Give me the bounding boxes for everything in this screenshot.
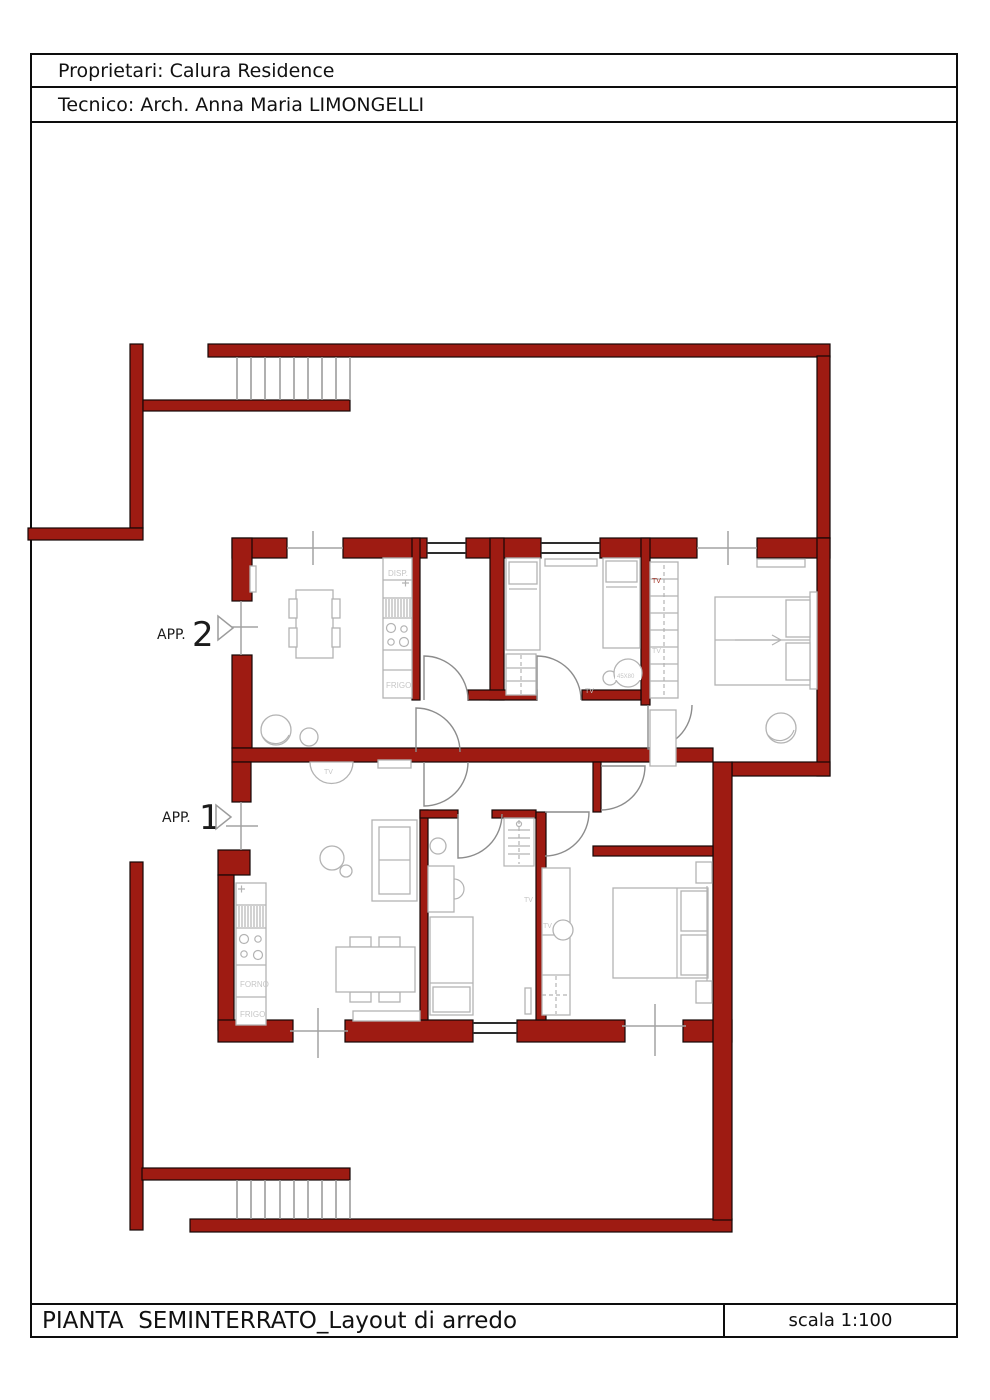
door-arc [424,656,468,700]
single-bed [603,558,640,648]
dining-table [336,937,415,1002]
table-size-label: 45X80 [617,674,635,680]
shelf [378,760,411,768]
dining-table [289,590,340,658]
wall-tv-unit [250,566,256,592]
wardrobe [525,868,573,1015]
stool [766,713,796,743]
single-bed [506,558,540,650]
stair-bottom [237,1180,350,1219]
closet-shelves [504,818,534,866]
nightstand [696,981,712,1003]
nightstand [696,862,712,883]
tv-label: TV [543,923,552,930]
tv-stand [353,1011,420,1021]
double-bed [613,886,708,981]
forno-label: FORNO [240,980,269,989]
sofa [372,820,417,901]
entry-arrow-icon [218,616,233,640]
shelf [545,559,597,566]
disp-label: DISP. [388,569,408,578]
door-arc [537,656,581,700]
tv-label: TV [652,648,661,655]
tv-label: TV [324,769,333,776]
app2-label: APP. [157,627,186,643]
door-arc [545,812,589,856]
app1-walls [218,762,732,1220]
tv-label: TV [524,897,533,904]
dresser [506,654,536,695]
door-arc [458,814,502,858]
shelf [757,559,805,567]
app1-furniture [236,760,712,1025]
scale-label: scala 1:100 [723,1305,956,1336]
tv-label: TV [585,688,594,695]
floor-plan-drawing: DISP. FRIGO FORNO FRIGO TV TV TV TV TV T… [0,0,990,1400]
app1-marker: APP. 1 [162,798,231,838]
titleblock-footer: PIANTA SEMINTERRATO_Layout di arredo sca… [30,1303,958,1338]
frigo-label: FRIGO [386,681,411,690]
round-table-45x80 [603,659,642,687]
frigo-label: FRIGO [240,1010,265,1019]
stair-top [237,357,350,400]
kitchen-unit [236,883,266,1025]
site-walls [28,344,830,1232]
app2-furniture [250,558,817,766]
app2-marker: APP. 2 [157,615,233,655]
tv-label: TV [652,578,661,585]
plan-title: PIANTA SEMINTERRATO_Layout di arredo [32,1305,723,1336]
drawing-sheet: Proprietari: Calura Residence Tecnico: A… [0,0,990,1400]
app1-label: APP. [162,810,191,826]
armchair [261,715,318,746]
door-arc [601,766,645,810]
app2-number: 2 [192,615,214,655]
door-arc [424,762,468,806]
single-bed [430,917,473,1015]
kitchen-unit [383,558,412,698]
door-arc [416,708,460,752]
decor-circles [320,846,352,877]
double-bed [715,592,817,689]
desk [650,710,676,766]
